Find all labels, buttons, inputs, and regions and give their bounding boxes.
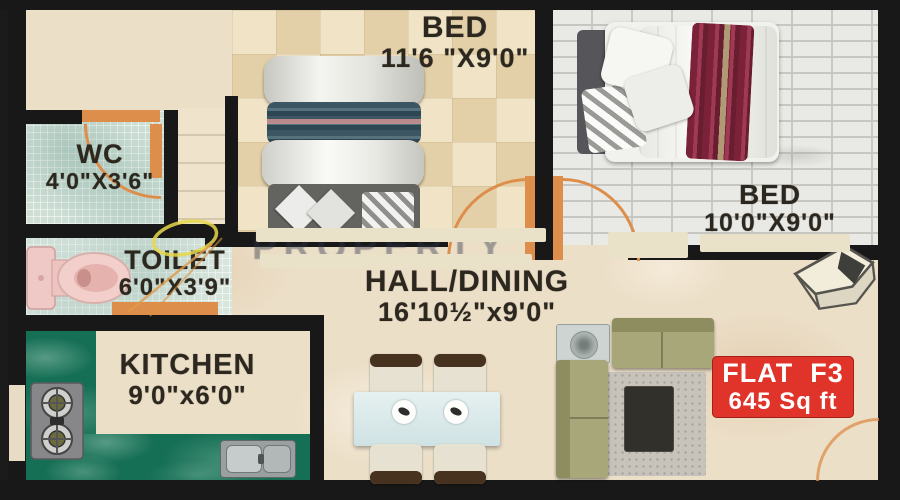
watermark-patch [608,232,688,258]
floor-plan: PROPERTY BED 11'6 "X9'0" BED 10'0"X9'0" … [0,0,900,500]
flat-area: 645 Sq ft [712,389,854,415]
flat-badge: FLAT F3 645 Sq ft [712,356,854,418]
flat-number: FLAT F3 [712,357,854,389]
watermark-patch [256,228,546,242]
watermark-patch [700,234,850,252]
watermark-patch [260,254,532,268]
